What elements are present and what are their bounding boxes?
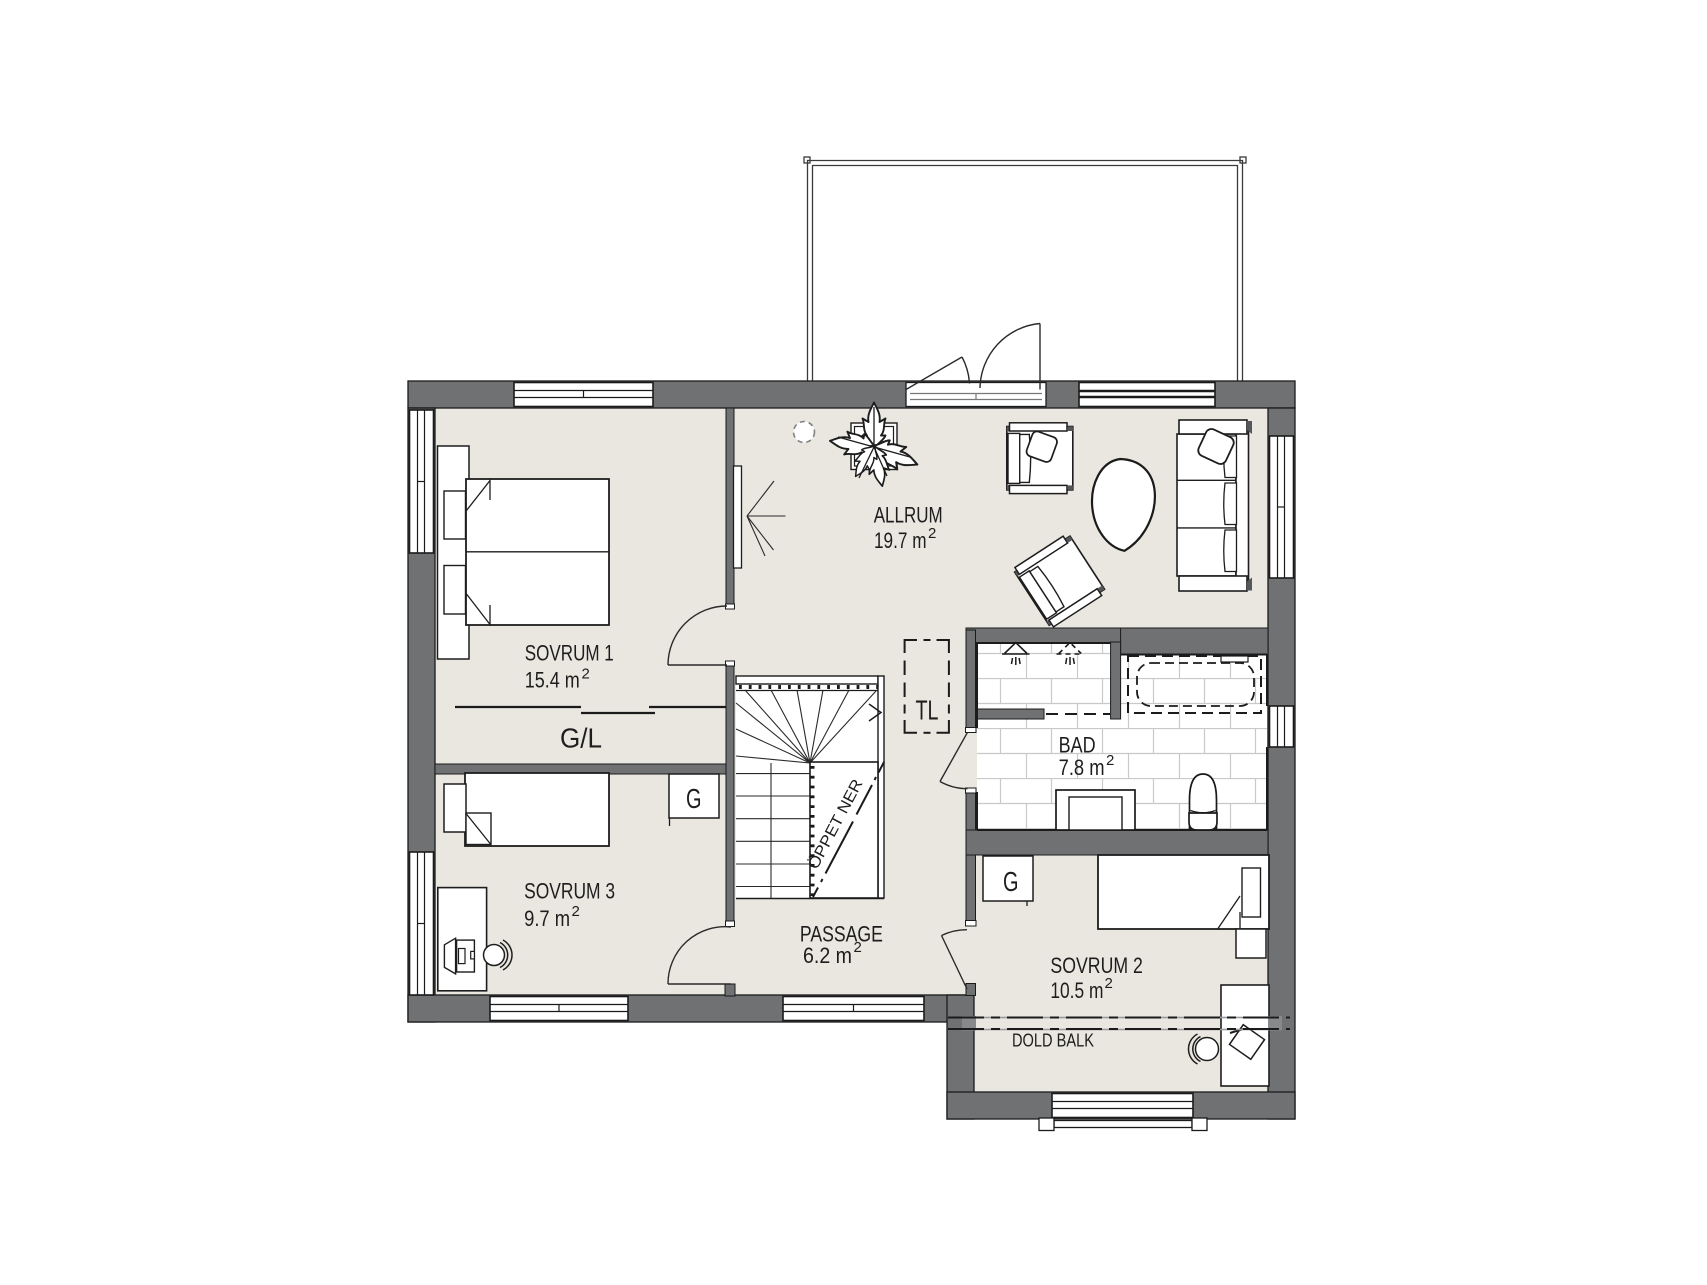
svg-text:G: G bbox=[1003, 866, 1019, 897]
svg-text:15.4 m: 15.4 m bbox=[525, 668, 580, 693]
svg-text:2: 2 bbox=[582, 666, 590, 683]
svg-text:2: 2 bbox=[1106, 752, 1114, 769]
svg-text:2: 2 bbox=[1105, 975, 1113, 992]
svg-text:2: 2 bbox=[854, 939, 862, 956]
svg-text:2: 2 bbox=[928, 525, 936, 542]
svg-text:9.7 m: 9.7 m bbox=[524, 906, 570, 931]
svg-text:BAD: BAD bbox=[1059, 733, 1096, 758]
svg-text:SOVRUM 1: SOVRUM 1 bbox=[525, 641, 614, 666]
svg-text:DOLD BALK: DOLD BALK bbox=[1012, 1030, 1095, 1051]
svg-text:2: 2 bbox=[572, 903, 580, 920]
svg-text:SOVRUM 2: SOVRUM 2 bbox=[1050, 953, 1143, 978]
svg-text:TL: TL bbox=[916, 695, 939, 726]
svg-text:G: G bbox=[686, 783, 702, 814]
svg-text:7.8 m: 7.8 m bbox=[1059, 755, 1105, 780]
svg-text:ALLRUM: ALLRUM bbox=[874, 503, 943, 528]
svg-text:6.2 m: 6.2 m bbox=[803, 943, 852, 968]
svg-text:19.7 m: 19.7 m bbox=[874, 528, 927, 553]
svg-text:10.5 m: 10.5 m bbox=[1050, 978, 1103, 1003]
svg-text:SOVRUM 3: SOVRUM 3 bbox=[524, 879, 615, 904]
svg-text:G/L: G/L bbox=[560, 723, 602, 754]
